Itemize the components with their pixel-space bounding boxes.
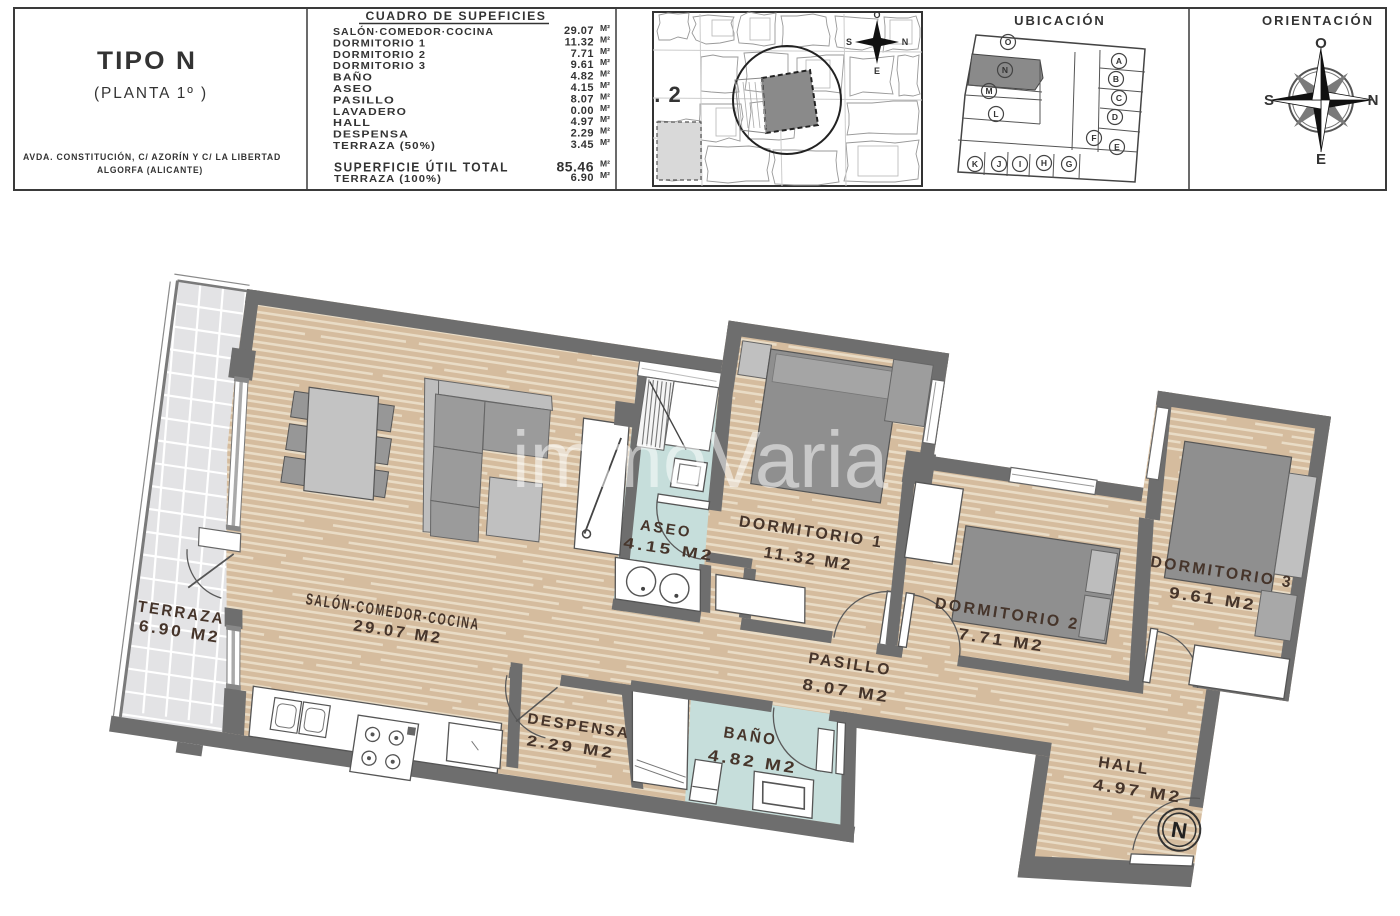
svg-text:H: H xyxy=(1041,158,1047,168)
svg-text:4.82: 4.82 xyxy=(571,71,594,83)
svg-text:G: G xyxy=(1066,159,1073,169)
svg-text:. 2: . 2 xyxy=(654,82,681,107)
svg-text:D: D xyxy=(1112,112,1118,122)
svg-text:(PLANTA 1º ): (PLANTA 1º ) xyxy=(94,85,208,102)
svg-text:PASILLO: PASILLO xyxy=(333,94,395,106)
svg-text:E: E xyxy=(1114,142,1120,152)
svg-text:M²: M² xyxy=(600,114,610,124)
svg-text:K: K xyxy=(972,159,979,169)
svg-text:ORIENTACIÓN: ORIENTACIÓN xyxy=(1262,13,1374,28)
svg-text:O: O xyxy=(1005,37,1012,47)
svg-text:6.90: 6.90 xyxy=(571,172,594,184)
svg-text:N: N xyxy=(1002,65,1008,75)
svg-text:B: B xyxy=(1113,74,1119,84)
svg-text:M²: M² xyxy=(600,57,610,67)
svg-text:immoVaria: immoVaria xyxy=(512,415,889,504)
svg-text:M²: M² xyxy=(600,69,610,79)
svg-text:N: N xyxy=(1368,92,1379,109)
svg-text:11.32: 11.32 xyxy=(565,36,594,48)
svg-text:LAVADERO: LAVADERO xyxy=(333,106,407,118)
svg-text:M²: M² xyxy=(600,103,610,113)
svg-text:E: E xyxy=(874,66,880,76)
svg-text:TERRAZA (50%): TERRAZA (50%) xyxy=(333,140,436,152)
svg-text:M²: M² xyxy=(600,23,610,33)
svg-text:ALGORFA (ALICANTE): ALGORFA (ALICANTE) xyxy=(97,165,203,175)
svg-text:3.45: 3.45 xyxy=(571,139,594,151)
svg-text:29.07: 29.07 xyxy=(564,25,594,37)
svg-text:M²: M² xyxy=(600,137,610,147)
svg-text:UBICACIÓN: UBICACIÓN xyxy=(1014,13,1106,28)
svg-text:DORMITORIO 3: DORMITORIO 3 xyxy=(333,60,426,72)
svg-text:DORMITORIO 1: DORMITORIO 1 xyxy=(333,37,426,49)
svg-text:BAÑO: BAÑO xyxy=(333,71,373,84)
svg-text:HALL: HALL xyxy=(333,117,371,129)
svg-text:M: M xyxy=(985,86,992,96)
svg-text:DESPENSA: DESPENSA xyxy=(333,129,409,141)
svg-text:L: L xyxy=(993,109,998,119)
svg-text:E: E xyxy=(1316,151,1326,168)
svg-text:TIPO N: TIPO N xyxy=(97,47,197,75)
svg-text:0.00: 0.00 xyxy=(571,105,594,117)
svg-text:7.71: 7.71 xyxy=(571,48,594,60)
svg-text:M²: M² xyxy=(600,91,610,101)
svg-text:CUADRO DE SUPEFICIES: CUADRO DE SUPEFICIES xyxy=(366,9,547,23)
svg-text:F: F xyxy=(1091,133,1096,143)
svg-text:M²: M² xyxy=(600,80,610,90)
svg-text:O: O xyxy=(1315,35,1327,52)
svg-text:TERRAZA (100%): TERRAZA (100%) xyxy=(334,173,442,185)
svg-text:S: S xyxy=(1264,92,1274,109)
svg-text:8.07: 8.07 xyxy=(571,93,594,105)
svg-text:O: O xyxy=(873,10,880,20)
svg-text:ASEO: ASEO xyxy=(333,83,373,95)
svg-text:SALÓN·COMEDOR·COCINA: SALÓN·COMEDOR·COCINA xyxy=(333,25,494,38)
svg-text:I: I xyxy=(1019,159,1021,169)
svg-text:S: S xyxy=(846,37,852,47)
svg-text:J: J xyxy=(997,159,1002,169)
svg-text:M²: M² xyxy=(600,126,610,136)
svg-text:A: A xyxy=(1116,56,1122,66)
svg-text:9.61: 9.61 xyxy=(571,59,594,71)
svg-text:M²: M² xyxy=(600,158,610,168)
svg-text:AVDA. CONSTITUCIÓN, C/ AZORÍN: AVDA. CONSTITUCIÓN, C/ AZORÍN Y C/ LA LI… xyxy=(23,151,281,162)
svg-text:C: C xyxy=(1116,93,1122,103)
svg-text:M²: M² xyxy=(600,46,610,56)
svg-text:M²: M² xyxy=(600,34,610,44)
svg-text:4.97: 4.97 xyxy=(571,116,594,128)
svg-text:2.29: 2.29 xyxy=(571,128,594,140)
svg-text:N: N xyxy=(902,37,909,47)
svg-text:M²: M² xyxy=(600,170,610,180)
svg-text:4.15: 4.15 xyxy=(571,82,594,94)
svg-text:DORMITORIO 2: DORMITORIO 2 xyxy=(333,49,426,61)
